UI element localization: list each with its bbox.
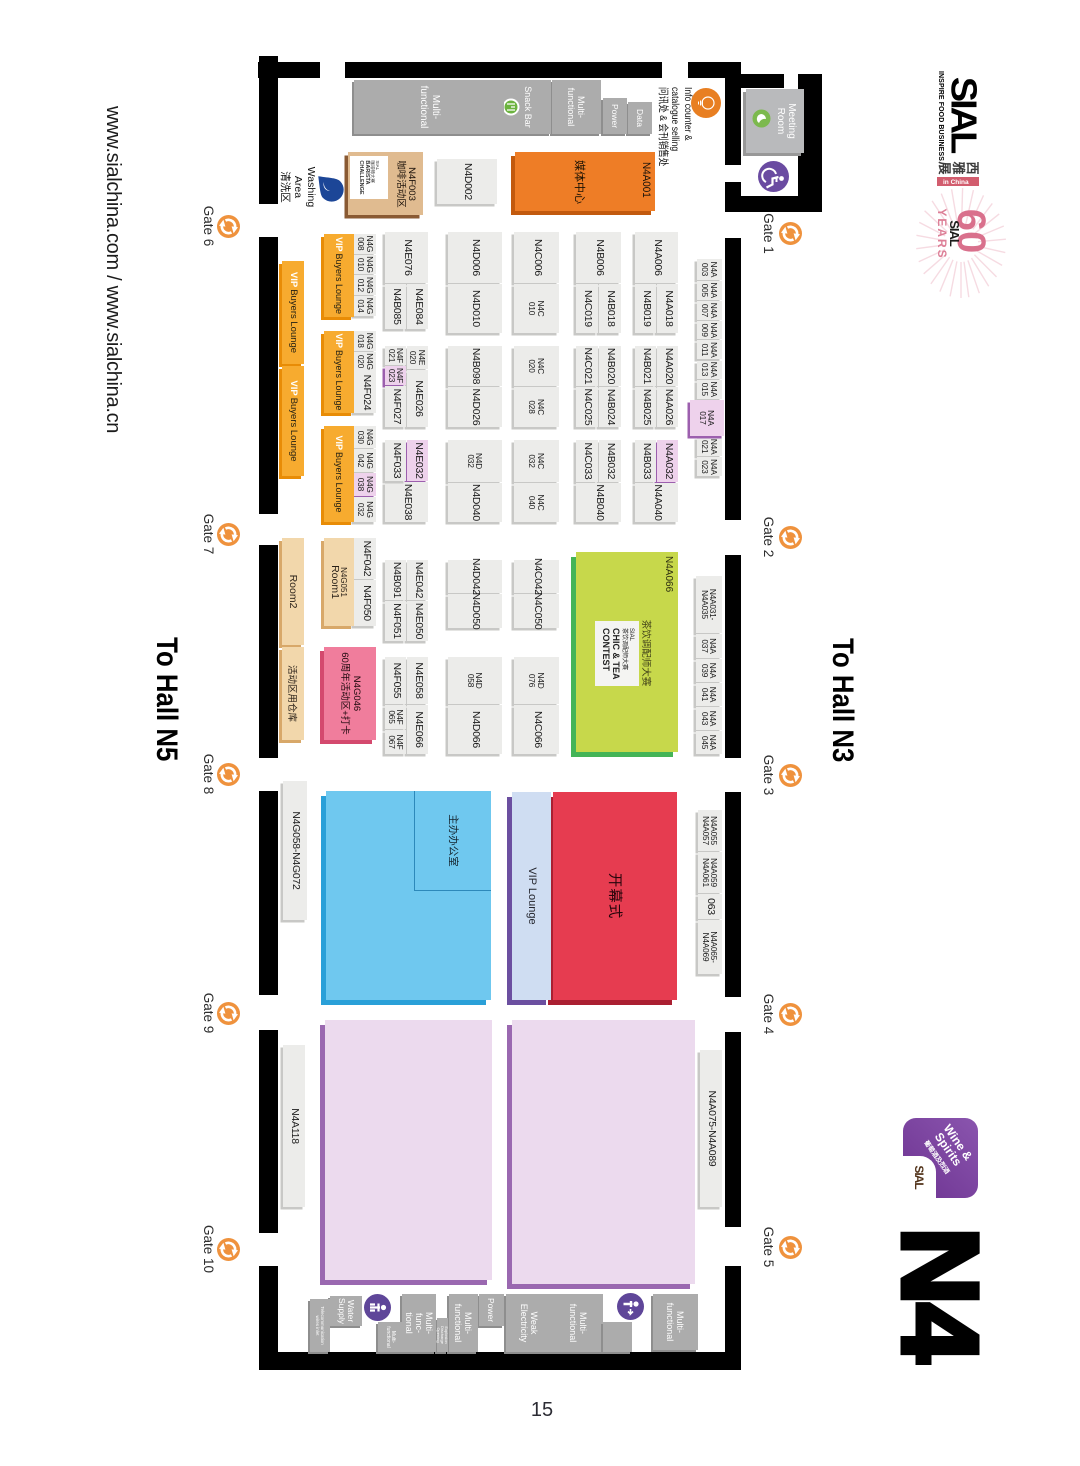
svg-text:in China: in China bbox=[943, 179, 969, 186]
